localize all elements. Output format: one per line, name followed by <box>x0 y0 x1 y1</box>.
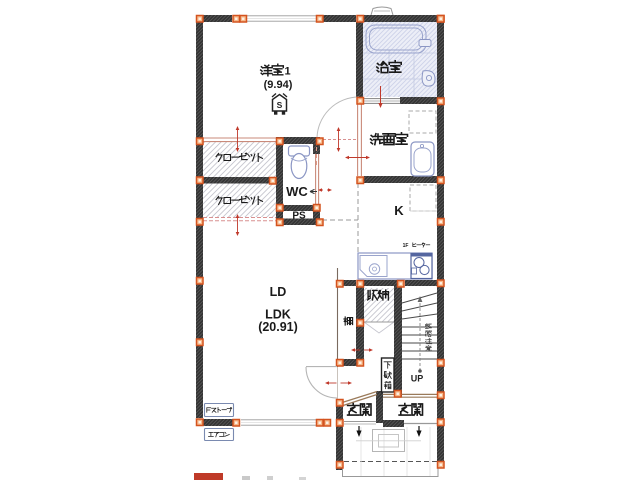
svg-text:(9.94): (9.94) <box>264 79 293 91</box>
svg-text:UP: UP <box>411 374 424 384</box>
svg-text:LD: LD <box>270 285 287 299</box>
svg-text:PS: PS <box>292 211 306 222</box>
svg-text:S: S <box>277 100 283 110</box>
svg-text:K: K <box>394 203 404 218</box>
svg-text:1F: 1F <box>403 243 409 249</box>
svg-text:1: 1 <box>284 66 290 78</box>
svg-text:(20.91): (20.91) <box>258 320 298 334</box>
svg-text:WC: WC <box>286 184 308 199</box>
